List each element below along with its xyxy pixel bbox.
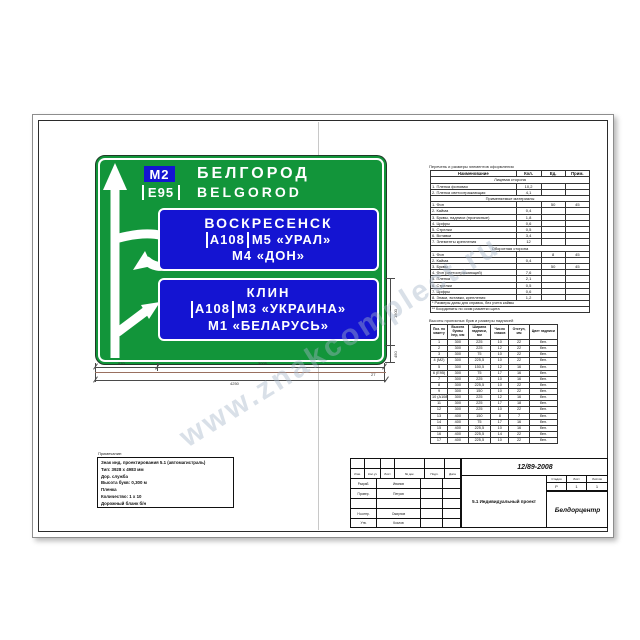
tb-sig bbox=[421, 519, 443, 527]
tb-role: Н.контр. bbox=[351, 509, 377, 519]
table-header: Число знаков bbox=[491, 325, 509, 340]
table1-wrap: НаименованиеКол.Ед.Прим.Лицевая сторона1… bbox=[430, 170, 590, 313]
tb-label-koluch: Кол.уч bbox=[365, 469, 381, 479]
tb-cell bbox=[365, 459, 381, 469]
notes-box: Знак инд. проектирования 5.1 (автомагист… bbox=[97, 457, 234, 508]
tb-name bbox=[377, 499, 421, 509]
tb-stage-value: Р bbox=[546, 483, 567, 491]
dim-label-seg2: 3005 bbox=[258, 361, 267, 366]
panel1-route-line2: М4 «ДОН» bbox=[232, 248, 305, 264]
table-header: Поз. по макету bbox=[431, 325, 448, 340]
sign-panel-voskresensk: ВОСКРЕСЕНСК А108 М5 «УРАЛ» М4 «ДОН» bbox=[158, 208, 379, 271]
tb-sig bbox=[421, 499, 443, 509]
route-badge-m2: М2 bbox=[144, 166, 175, 182]
tb-label-list: Лист bbox=[381, 469, 395, 479]
table-header: Цвет надписи bbox=[529, 325, 557, 340]
tb-role: Разраб. bbox=[351, 479, 377, 489]
dim-line-1 bbox=[95, 367, 385, 368]
note-line: Дор. служба bbox=[101, 474, 230, 481]
tb-label-podp: Подп. bbox=[425, 469, 445, 479]
table-row: 17400225,51022бел. bbox=[431, 438, 558, 444]
sign-panel-klin: КЛИН А108 М3 «УКРАИНА» М1 «БЕЛАРУСЬ» bbox=[158, 278, 379, 341]
tb-list-value: 1 bbox=[567, 483, 587, 491]
tb-label-dok: № док. bbox=[395, 469, 425, 479]
tb-date bbox=[443, 499, 461, 509]
vdim-tick-top bbox=[385, 278, 395, 279]
tb-cell bbox=[381, 459, 395, 469]
table-header: Высота буквы hпр, мм bbox=[448, 325, 468, 340]
table-header: Отступ, мм bbox=[509, 325, 529, 340]
sign-city-ru: БЕЛГОРОД bbox=[197, 165, 310, 183]
tb-label-izm: Изм. bbox=[351, 469, 365, 479]
tb-sig bbox=[421, 509, 443, 519]
note-line: Дорожный бланк б/н bbox=[101, 501, 230, 508]
table2-caption: Высоты прописных букв и размеры надписей bbox=[429, 318, 513, 323]
tb-cell bbox=[395, 459, 425, 469]
dim-label-seg1: 870 bbox=[118, 361, 125, 366]
title-block: Изм. Кол.уч Лист № док. Подп. Дата Разра… bbox=[350, 458, 608, 528]
road-sign: М2 БЕЛГОРОД Е95 BELGOROD ВОСКРЕСЕНСК А10… bbox=[95, 155, 387, 365]
sign-city-lat: BELGOROD bbox=[197, 184, 302, 200]
tb-label-data: Дата bbox=[445, 469, 461, 479]
tb-project-title: 5.1 Индивидуальный проект bbox=[461, 475, 546, 527]
panel2-city: КЛИН bbox=[247, 285, 291, 301]
tb-sig bbox=[421, 489, 443, 499]
tb-cell bbox=[351, 459, 365, 469]
route-badge-e95: Е95 bbox=[142, 185, 180, 200]
vdim-line bbox=[390, 278, 391, 362]
tb-date bbox=[443, 509, 461, 519]
dim-corner-note: 27 bbox=[371, 372, 375, 377]
table-note-row: ** Координаты по осям разметки щита bbox=[431, 307, 590, 313]
table-header: Ширина надписи, мм bbox=[468, 325, 491, 340]
tb-cell bbox=[445, 459, 461, 469]
tb-sig bbox=[421, 479, 443, 489]
note-line: Тип: 3928 х 4983 мм bbox=[101, 467, 230, 474]
elements-table: НаименованиеКол.Ед.Прим.Лицевая сторона1… bbox=[430, 170, 590, 313]
table1-caption: Перечень и размеры элементов оформления bbox=[429, 164, 514, 169]
tb-name: Смирнов bbox=[377, 509, 421, 519]
note-line: Количество: 1 х 10 bbox=[101, 494, 230, 501]
panel1-route-line: М5 «УРАЛ» bbox=[252, 232, 331, 248]
tb-doc-number: 12/89-2008 bbox=[461, 459, 608, 476]
tb-stage-label: Стадия bbox=[546, 475, 567, 483]
tb-cell bbox=[425, 459, 445, 469]
tb-list-label: Лист bbox=[567, 475, 587, 483]
tb-name: Петров bbox=[377, 489, 421, 499]
tb-name: Козлов bbox=[377, 519, 421, 527]
route-badge-a108: А108 bbox=[206, 232, 249, 248]
section-line bbox=[95, 372, 386, 373]
route-badge-a108-2: А108 bbox=[191, 301, 234, 317]
note-line: Пленка bbox=[101, 487, 230, 494]
drawing-canvas: М2 БЕЛГОРОД Е95 BELGOROD ВОСКРЕСЕНСК А10… bbox=[0, 0, 640, 640]
tb-name: Иванов bbox=[377, 479, 421, 489]
panel2-route-line: М3 «УКРАИНА» bbox=[237, 301, 346, 317]
tb-role: Провер. bbox=[351, 489, 377, 499]
tb-listov-value: 1 bbox=[587, 483, 607, 491]
tb-date bbox=[443, 489, 461, 499]
panel2-route-line2: М1 «БЕЛАРУСЬ» bbox=[208, 318, 329, 334]
vdim-tick-mid bbox=[385, 345, 395, 346]
vdim-label-top: 1500 bbox=[393, 309, 398, 318]
letter-heights-table: Поз. по макетуВысота буквы hпр, ммШирина… bbox=[430, 324, 558, 444]
note-line: Знак инд. проектирования 5.1 (автомагист… bbox=[101, 460, 230, 467]
tb-date bbox=[443, 519, 461, 527]
tb-date bbox=[443, 479, 461, 489]
tb-organization: Белдорцентр bbox=[546, 491, 608, 528]
notes-caption: Примечание: bbox=[98, 451, 122, 456]
vdim-label-bottom: 450 bbox=[393, 351, 398, 358]
vdim-tick-bot bbox=[385, 362, 395, 363]
tb-listov-label: Листов bbox=[587, 475, 607, 483]
tb-role: Утв. bbox=[351, 519, 377, 527]
note-line: Высота букв: 0,300 м bbox=[101, 480, 230, 487]
dim-label-total: 4250 bbox=[230, 381, 239, 386]
panel1-city: ВОСКРЕСЕНСК bbox=[204, 215, 332, 233]
dim-line-total bbox=[95, 380, 386, 381]
tb-role bbox=[351, 499, 377, 509]
table2-wrap: Поз. по макетуВысота буквы hпр, ммШирина… bbox=[430, 324, 558, 444]
